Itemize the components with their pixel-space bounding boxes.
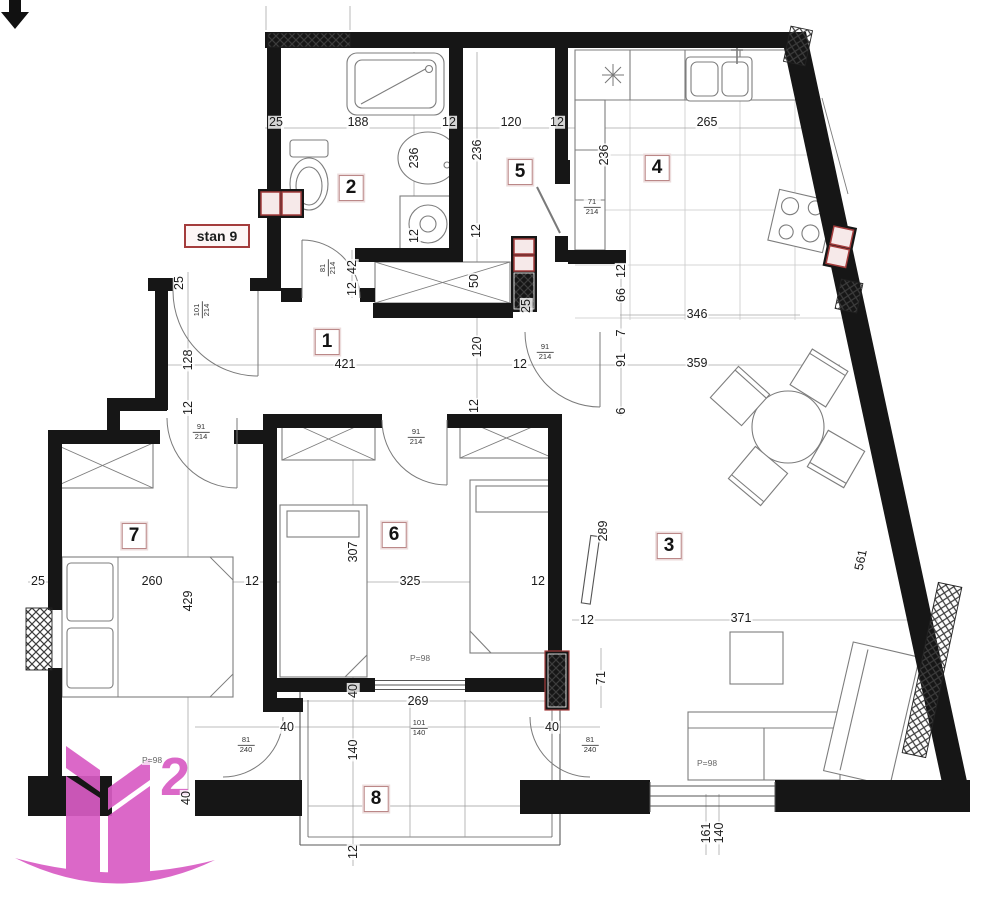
kitchen-star-symbol: [602, 64, 624, 86]
logo-exponent: 2: [160, 747, 190, 807]
washing-machine: [400, 196, 456, 252]
sofa: [688, 642, 920, 786]
wardrobe-hall: [375, 262, 510, 303]
shower: [347, 53, 444, 115]
walls: [28, 32, 970, 816]
unit-label: stan 9: [184, 224, 250, 248]
bed-double: [62, 557, 233, 697]
bed-single: [280, 505, 367, 677]
coffee-table: [730, 632, 783, 684]
wardrobe-room7: [52, 443, 153, 488]
floor-plan: 2 25188121201226523623623612122512812421…: [0, 0, 998, 900]
terrace-outline: [300, 692, 560, 845]
floor-plan-drawing: 2: [0, 0, 998, 900]
entrance-arrow-icon: [0, 0, 30, 30]
bed-single: [470, 480, 557, 653]
tv: [581, 535, 599, 604]
